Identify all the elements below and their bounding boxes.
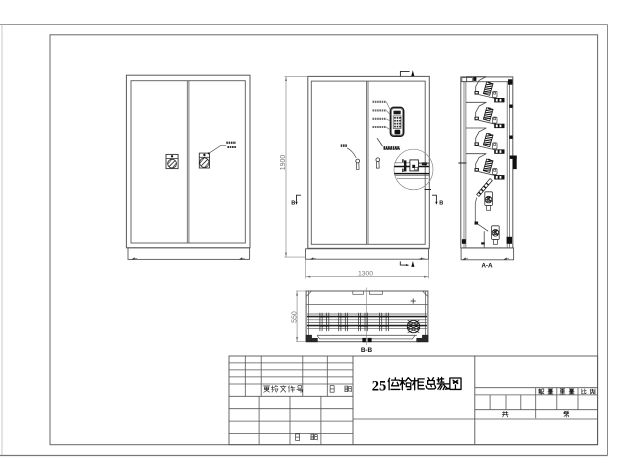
- svg-text:B-B: B-B: [361, 347, 373, 354]
- svg-text:1300: 1300: [358, 270, 373, 277]
- svg-text:B: B: [439, 200, 443, 206]
- svg-text:B: B: [291, 200, 295, 206]
- svg-text:550: 550: [292, 311, 299, 323]
- svg-text:25: 25: [372, 379, 387, 395]
- svg-text:A-A: A-A: [481, 262, 493, 269]
- svg-text:1900: 1900: [280, 155, 287, 171]
